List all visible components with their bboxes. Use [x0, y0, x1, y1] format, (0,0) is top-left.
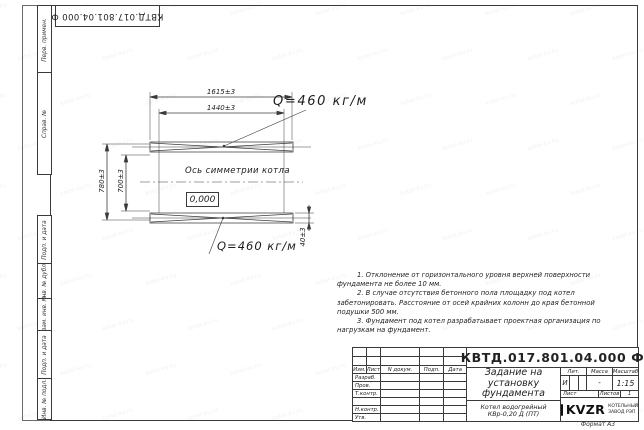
- notes-block: 1. Отклонение от горизонтального уровня …: [337, 271, 633, 335]
- symmetry-axis-label: Ось симметрии котла: [185, 166, 290, 176]
- mass-label: Масса: [587, 368, 613, 375]
- leader-line-top: [224, 110, 306, 146]
- empty-cell: [444, 406, 466, 413]
- drawing-sheet: kotel-kv.rukotel-kv.rukotel-kv.rukotel-k…: [0, 0, 644, 430]
- empty-cell: [353, 398, 381, 405]
- dim-text-40: 40±3: [299, 219, 307, 255]
- change-row: [353, 357, 466, 366]
- company-name: КОТЕЛЬНЫЙ ЗАВОД РЭП: [608, 404, 638, 415]
- empty-cell: [444, 414, 466, 421]
- sheet-row: Лист Листов 1: [561, 391, 638, 398]
- mass-value: -: [587, 376, 613, 390]
- scale-value: 1:15: [613, 376, 638, 390]
- header-row: Изм. Лист N докум. Подп. Дата: [353, 366, 466, 374]
- format-label: Формат А3: [558, 421, 638, 428]
- note-line: 2. В случае отсутствия бетонного пола пл…: [337, 289, 633, 298]
- empty-cell: [420, 390, 444, 397]
- sheet-label: Лист: [561, 391, 599, 397]
- sig-row-razrab: Разраб.: [353, 374, 466, 382]
- empty-cell: [381, 382, 421, 389]
- note-line: 1. Отклонение от горизонтального уровня …: [337, 271, 633, 280]
- empty-cell: [570, 376, 579, 390]
- level-mark-box: 0,000: [186, 192, 219, 207]
- empty-cell: [381, 398, 421, 405]
- leader-dot: [223, 145, 226, 148]
- empty-cell: [381, 406, 421, 413]
- empty-cell: [367, 348, 381, 356]
- empty-cell: [444, 398, 466, 405]
- load-label-bottom: Q=460 кг/м: [217, 239, 297, 253]
- empty-cell: [420, 414, 444, 421]
- dim-text-1615: 1615±3: [203, 88, 239, 96]
- lit-mass-scale-values: И - 1:15: [561, 376, 638, 391]
- title-block-signature-table: Изм. Лист N докум. Подп. Дата Разраб. Пр…: [353, 348, 467, 421]
- empty-cell: [444, 374, 466, 381]
- note-line: забетонировать. Расстояние от осей крайн…: [337, 299, 633, 308]
- dim-arrow: [105, 144, 108, 151]
- empty-cell: [420, 398, 444, 405]
- col-header-doc: N докум.: [381, 366, 421, 373]
- company-name-line: ЗАВОД РЭП: [608, 410, 638, 415]
- sheets-value: 1: [621, 391, 638, 397]
- note-line: подушки 500 мм.: [337, 308, 633, 317]
- sheets-label: Листов: [599, 391, 621, 397]
- dim-arrow: [150, 95, 157, 98]
- load-label-top: Q=460 кг/м: [273, 94, 368, 109]
- col-header-data: Дата: [444, 366, 466, 373]
- kvzr-coil-icon: [561, 404, 563, 416]
- dim-arrow: [307, 207, 310, 213]
- lit-label: Лит.: [561, 368, 587, 375]
- sig-row-nkontr: Н.контр.: [353, 406, 466, 414]
- product-name: Котел водогрейный КВр-0,20 Д (ПТ): [467, 401, 561, 421]
- company-logo-row: KVZR КОТЕЛЬНЫЙ ЗАВОД РЭП: [561, 398, 638, 421]
- empty-cell: [420, 406, 444, 413]
- scale-label: Масштаб: [613, 368, 638, 375]
- title-block-right: КВТД.017.801.04.000 Ф Задание на установ…: [467, 348, 638, 421]
- sig-row-utv: Утв.: [353, 414, 466, 421]
- dim-arrow: [124, 204, 127, 211]
- empty-cell: [579, 376, 587, 390]
- empty-cell: [420, 357, 444, 365]
- sig-row-tkontr: Т.контр.: [353, 390, 466, 398]
- empty-cell: [444, 382, 466, 389]
- lit-mass-scale-header: Лит. Масса Масштаб: [561, 368, 638, 376]
- empty-cell: [367, 357, 381, 365]
- dim-text-1440: 1440±3: [203, 104, 239, 112]
- empty-cell: [420, 382, 444, 389]
- title-block: Изм. Лист N докум. Подп. Дата Разраб. Пр…: [352, 347, 639, 422]
- dim-arrow: [105, 213, 108, 220]
- col-header-podp: Подп.: [420, 366, 444, 373]
- empty-cell: [381, 348, 421, 356]
- product-name-line: КВр-0,20 Д (ПТ): [488, 411, 540, 419]
- sig-label: Т.контр.: [353, 390, 381, 397]
- col-header-izm: Изм.: [353, 366, 367, 373]
- empty-cell: [381, 414, 421, 421]
- dim-text-700: 700±3: [117, 163, 125, 199]
- empty-cell: [381, 390, 421, 397]
- sig-label: Пров.: [353, 382, 381, 389]
- dim-text-780: 780±3: [98, 163, 106, 199]
- empty-cell: [381, 357, 421, 365]
- sig-row-prov: Пров.: [353, 382, 466, 390]
- drawing-title-line: фундамента: [482, 389, 545, 400]
- dim-arrow: [159, 111, 166, 114]
- kvzr-logo-text: KVZR: [566, 402, 605, 417]
- sig-label: Н.контр.: [353, 406, 381, 413]
- dim-arrow: [277, 111, 284, 114]
- leader-dot: [222, 217, 225, 220]
- sig-label: Разраб.: [353, 374, 381, 381]
- empty-cell: [420, 374, 444, 381]
- product-name-line: Котел водогрейный: [480, 404, 546, 412]
- dim-arrow: [124, 155, 127, 162]
- empty-cell: [420, 348, 444, 356]
- note-line: 3. Фундамент под котел разрабатывает про…: [337, 317, 633, 326]
- note-line: нагрузкам на фундамент.: [337, 326, 633, 335]
- dim-arrow: [307, 223, 310, 229]
- sig-label: Утв.: [353, 414, 381, 421]
- empty-cell: [444, 390, 466, 397]
- note-line: фундамента не более 10 мм.: [337, 280, 633, 289]
- change-row: [353, 348, 466, 357]
- title-block-grid: Лит. Масса Масштаб И - 1:15 Лист Листов …: [561, 368, 638, 421]
- drawing-title: Задание на установку фундамента: [467, 368, 561, 401]
- empty-cell: [353, 348, 367, 356]
- empty-cell: [353, 357, 367, 365]
- empty-cell: [381, 374, 421, 381]
- sig-row-empty: [353, 398, 466, 406]
- col-header-list: Лист: [367, 366, 381, 373]
- level-mark-text: 0,000: [190, 195, 216, 205]
- doc-number: КВТД.017.801.04.000 Ф: [467, 348, 638, 368]
- lit-value: И: [561, 376, 570, 390]
